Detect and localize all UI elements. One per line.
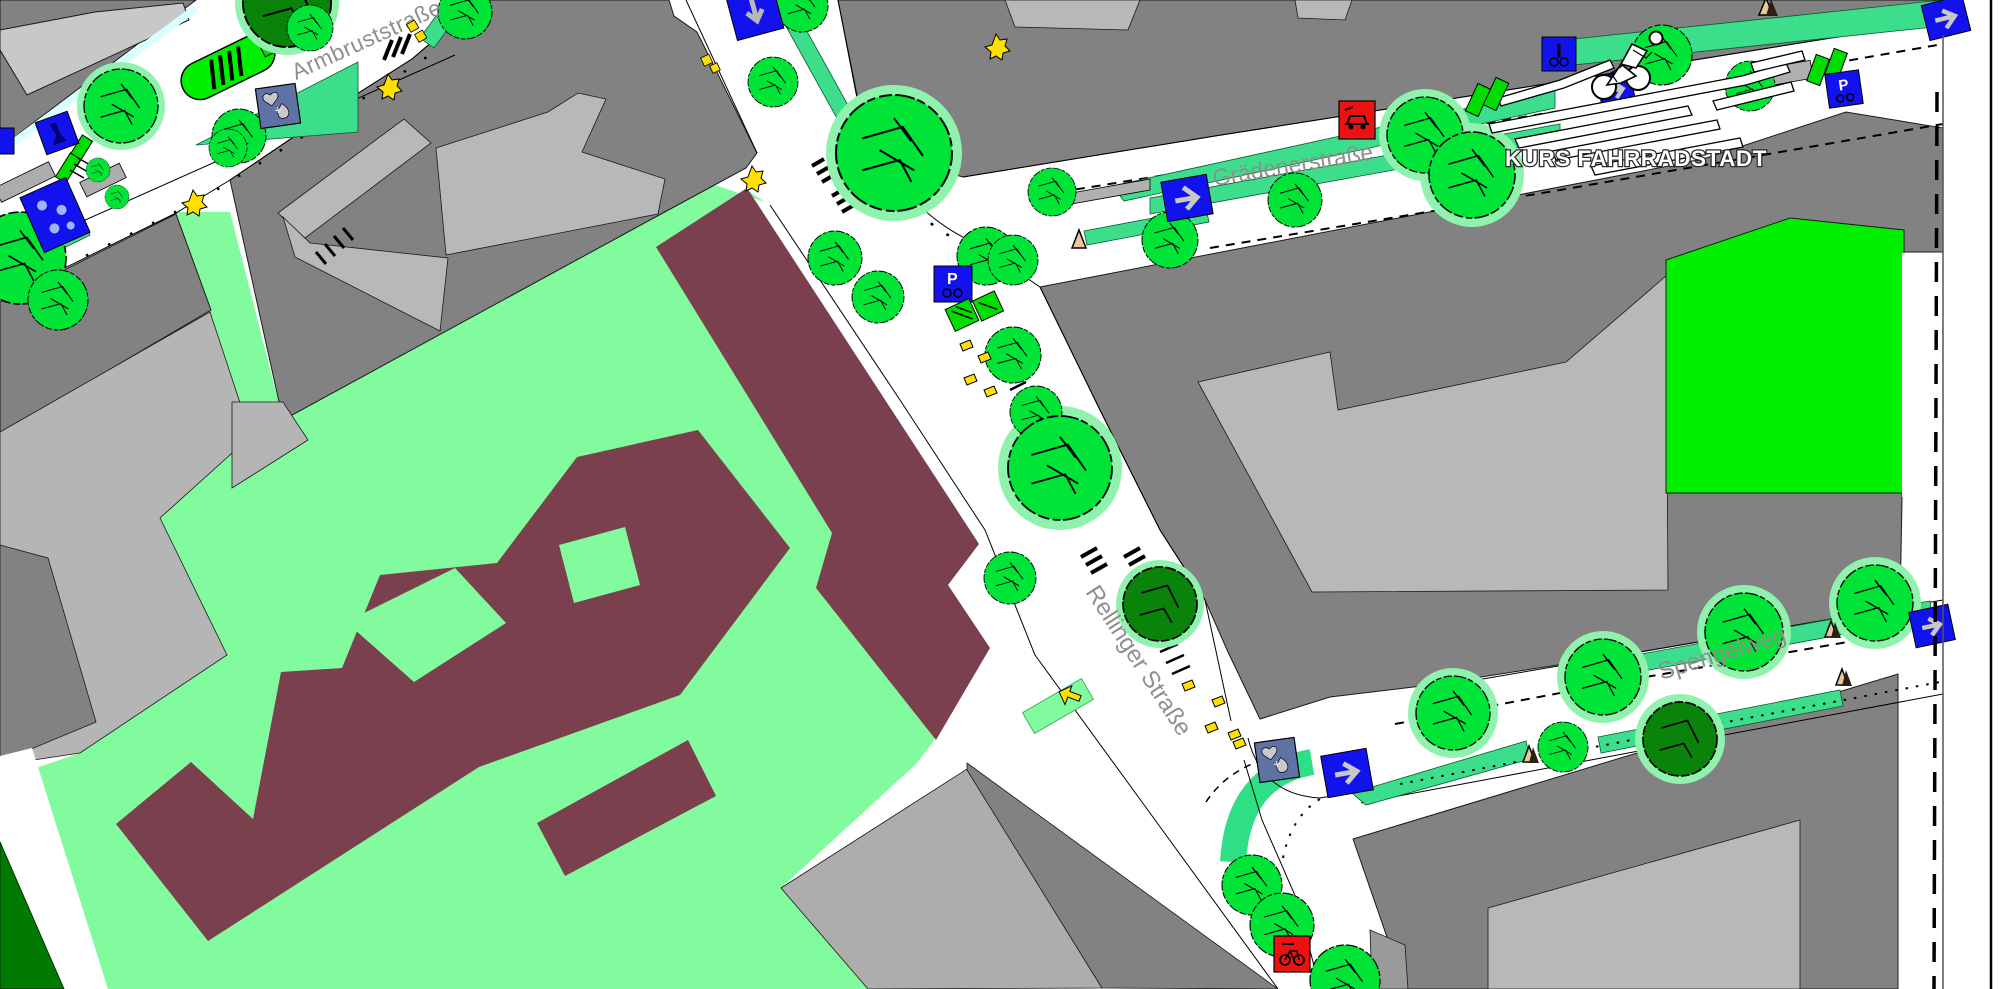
svg-text:P: P — [947, 271, 958, 288]
svg-text:KURS FAHRRADSTADT: KURS FAHRRADSTADT — [1505, 146, 1767, 171]
